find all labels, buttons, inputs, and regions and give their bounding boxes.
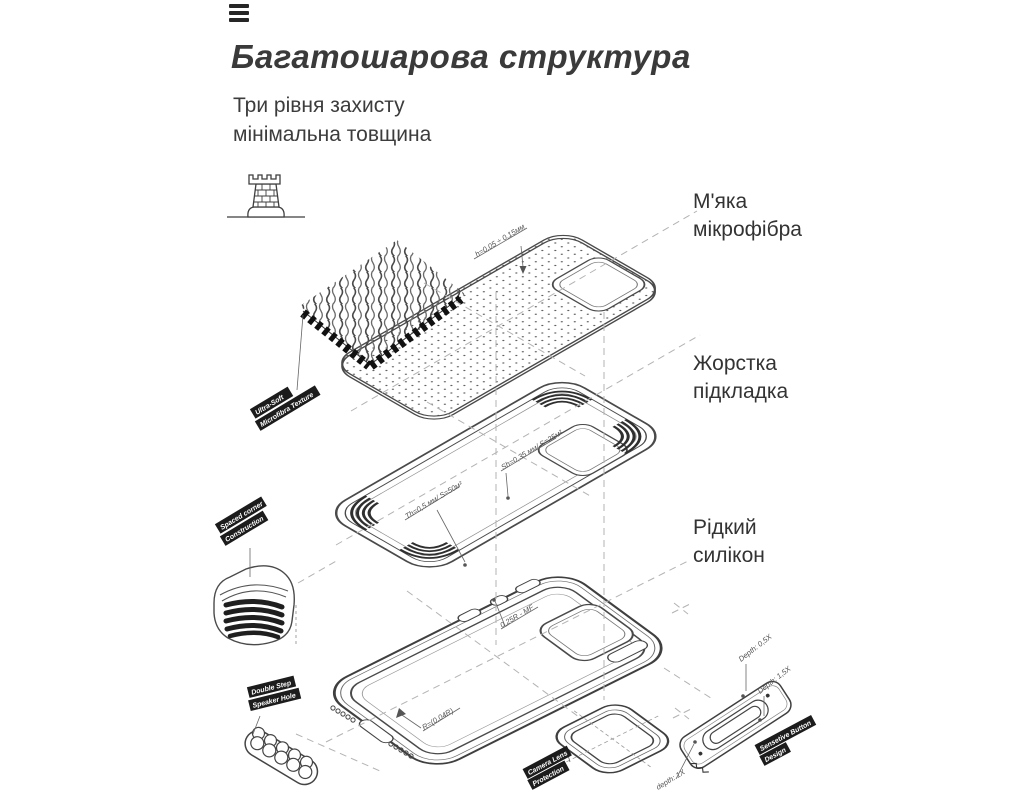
- exploded-diagram-canvas: h=0,05 ÷ 0,15мм Sh=0,35 мм/ S=25м² Th=0,…: [0, 0, 1024, 800]
- speaker-hole-detail: [240, 724, 323, 789]
- corner-detail: [214, 566, 296, 645]
- ribbon-speaker: Double Step Speaker Hole: [245, 675, 301, 711]
- ribbon-camera: Camera Lens Protection: [522, 746, 578, 790]
- annotation-depth-05: Depth: 0,5X: [737, 631, 775, 663]
- button-plate-detail: [676, 678, 798, 778]
- annotation-microfiber-thickness: h=0,05 ÷ 0,15мм: [473, 222, 526, 259]
- ribbon-microfiber: Ultra-Soft Microfibra Texture: [248, 374, 320, 431]
- ribbon-corner: Spaced corner Construction: [213, 496, 273, 545]
- castle-tower-icon: [227, 175, 305, 217]
- annotation-depth-1: depth: 1X: [654, 767, 687, 792]
